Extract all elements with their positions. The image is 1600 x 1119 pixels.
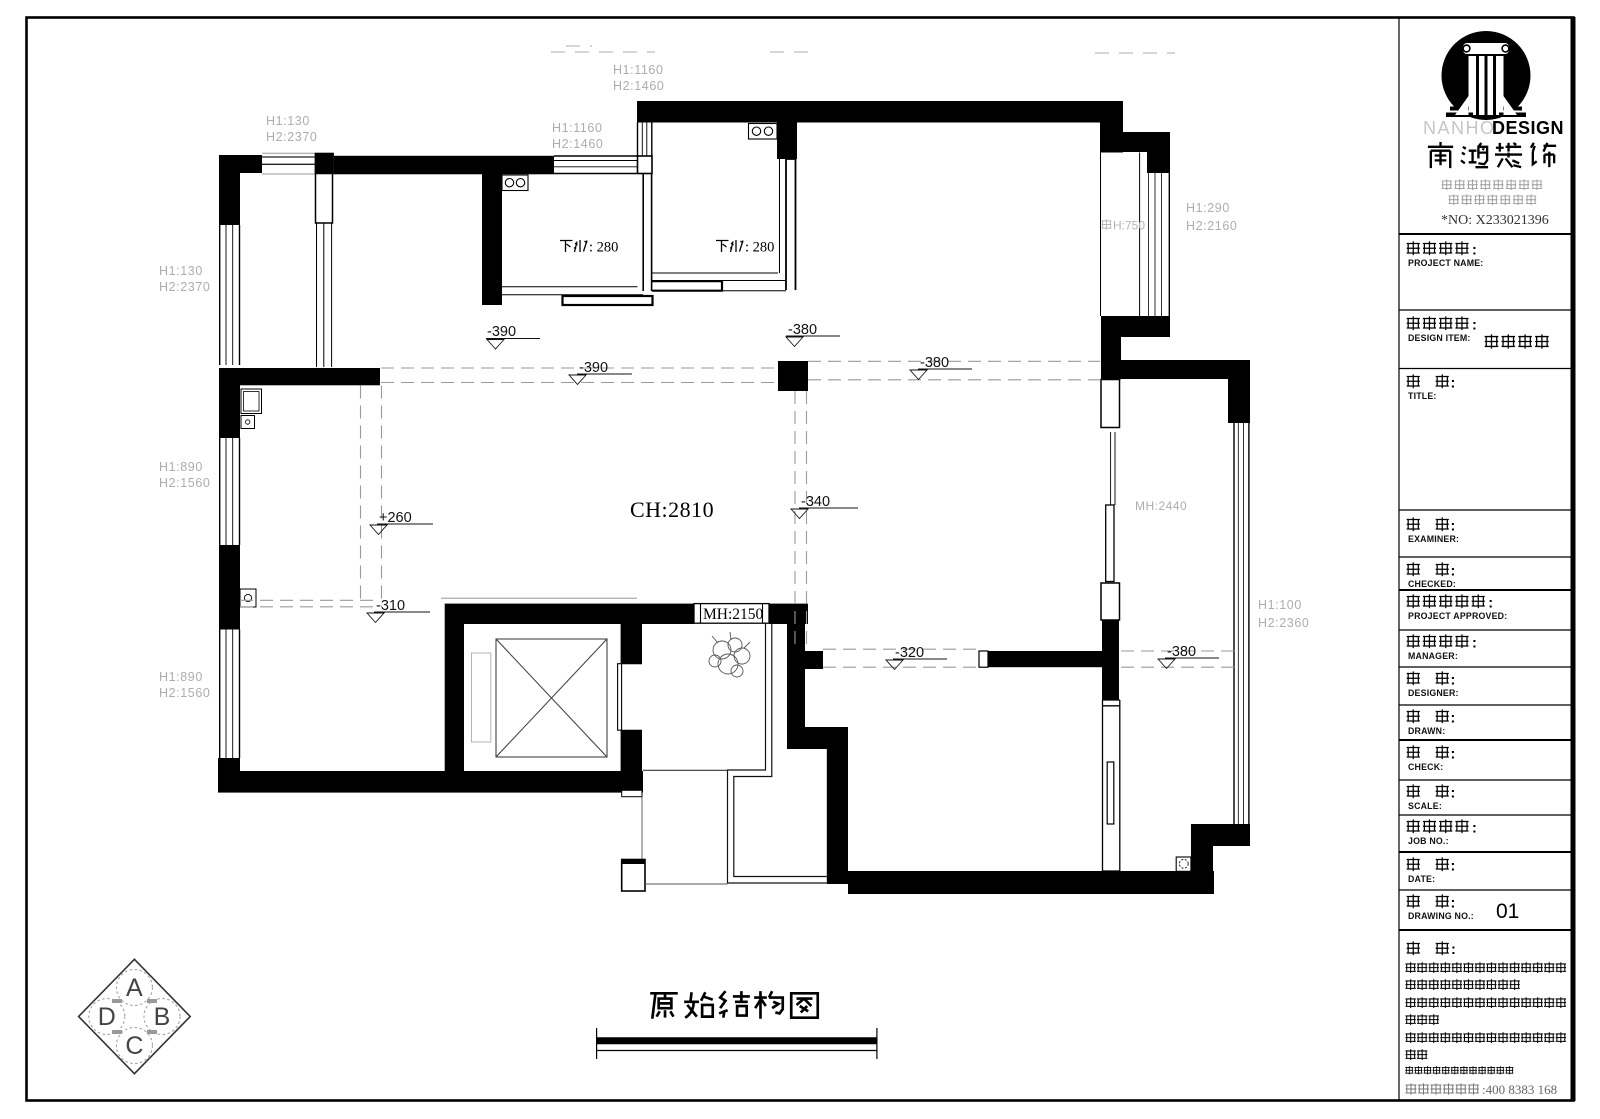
svg-text:DRAWING NO.:: DRAWING NO.:	[1408, 911, 1474, 921]
svg-text:H1:100: H1:100	[1258, 598, 1302, 612]
svg-text::: :	[1472, 318, 1477, 334]
svg-text::: :	[1472, 821, 1477, 837]
svg-text::: :	[1472, 636, 1477, 652]
svg-text:H1:1160: H1:1160	[552, 121, 603, 135]
svg-text:C: C	[125, 1032, 143, 1060]
svg-text:CHECK:: CHECK:	[1408, 762, 1443, 772]
svg-text::: :	[1451, 786, 1456, 802]
svg-text:H2:2370: H2:2370	[266, 130, 317, 144]
svg-text::: :	[1488, 596, 1493, 612]
svg-text:H2:2370: H2:2370	[159, 280, 210, 294]
svg-text:EXAMINER:: EXAMINER:	[1408, 534, 1459, 544]
svg-text:H2:1560: H2:1560	[159, 686, 210, 700]
svg-text:H2:2360: H2:2360	[1258, 616, 1309, 630]
svg-text:CH:2810: CH:2810	[630, 497, 714, 522]
svg-text:H:750: H:750	[1113, 219, 1145, 233]
svg-text:: 280: : 280	[745, 240, 774, 256]
svg-text:H2:1460: H2:1460	[613, 79, 664, 93]
svg-text:H1:130: H1:130	[159, 264, 203, 278]
svg-text::: :	[1451, 859, 1456, 875]
svg-text:H1:130: H1:130	[266, 114, 310, 128]
svg-text::: :	[1472, 243, 1477, 259]
svg-text::: :	[1451, 519, 1456, 535]
svg-text:NANHO: NANHO	[1423, 118, 1496, 138]
svg-text::: :	[1451, 376, 1456, 392]
svg-text:*NO: X233021396: *NO: X233021396	[1441, 213, 1549, 228]
svg-text::400 8383 168: :400 8383 168	[1482, 1082, 1557, 1097]
svg-text::: :	[1451, 564, 1456, 580]
svg-text:MH:2440: MH:2440	[1135, 499, 1187, 513]
svg-text:-390: -390	[487, 324, 516, 340]
svg-text:MANAGER:: MANAGER:	[1408, 651, 1458, 661]
svg-text:H1:890: H1:890	[159, 670, 203, 684]
svg-text:: 280: : 280	[589, 240, 618, 256]
svg-text:DESIGN ITEM:: DESIGN ITEM:	[1408, 333, 1471, 343]
svg-text:MH:2150: MH:2150	[703, 606, 764, 623]
svg-text::: :	[1451, 942, 1456, 958]
svg-text:CHECKED:: CHECKED:	[1408, 579, 1456, 589]
svg-text:JOB NO.:: JOB NO.:	[1408, 836, 1449, 846]
svg-text:D: D	[98, 1003, 116, 1031]
svg-text:H1:290: H1:290	[1186, 201, 1230, 215]
svg-text:TITLE:: TITLE:	[1408, 391, 1437, 401]
svg-text::: :	[1451, 711, 1456, 727]
svg-text:DESIGN: DESIGN	[1492, 118, 1564, 138]
svg-text:DRAWN:: DRAWN:	[1408, 726, 1445, 736]
svg-text:01: 01	[1496, 900, 1519, 923]
svg-text:DESIGNER:: DESIGNER:	[1408, 688, 1459, 698]
svg-text:H2:1460: H2:1460	[552, 137, 603, 151]
svg-text:H1:890: H1:890	[159, 460, 203, 474]
svg-text:B: B	[154, 1003, 171, 1031]
svg-text:H2:1560: H2:1560	[159, 476, 210, 490]
svg-text:A: A	[126, 974, 143, 1002]
svg-text::: :	[1451, 673, 1456, 689]
svg-text:PROJECT NAME:: PROJECT NAME:	[1408, 258, 1483, 268]
svg-text:H2:2160: H2:2160	[1186, 219, 1237, 233]
svg-text:PROJECT APPROVED:: PROJECT APPROVED:	[1408, 611, 1507, 621]
svg-text:DATE:: DATE:	[1408, 874, 1435, 884]
svg-text:SCALE:: SCALE:	[1408, 801, 1442, 811]
svg-text::: :	[1451, 747, 1456, 763]
svg-text::: :	[1451, 896, 1456, 912]
svg-text:H1:1160: H1:1160	[613, 63, 664, 77]
